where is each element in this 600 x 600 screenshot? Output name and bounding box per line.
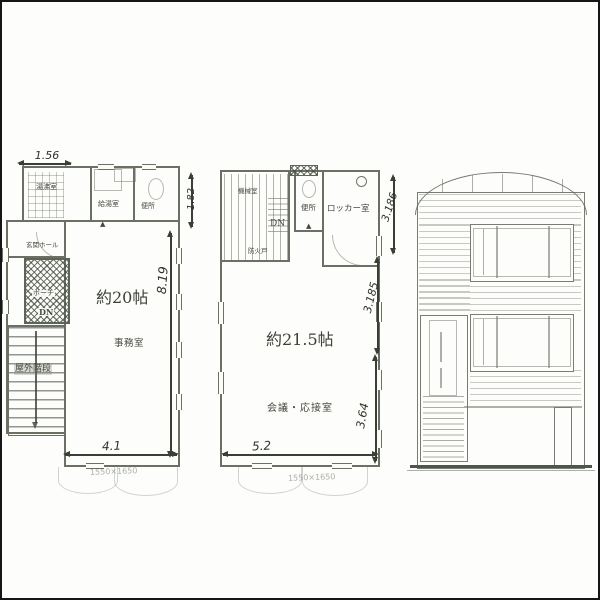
door-slit xyxy=(440,332,442,362)
stairs-direction-line xyxy=(35,331,37,423)
window-symbol xyxy=(176,342,182,358)
down-label: DN xyxy=(270,220,285,229)
fire-door-marker: ▲ xyxy=(306,223,311,230)
room-label-locker: ロッカー室 xyxy=(327,205,370,214)
dim-arrowhead xyxy=(172,451,179,457)
vent-hatch xyxy=(290,165,318,176)
wall xyxy=(288,170,290,262)
room-label-machine: 機械室 xyxy=(238,188,258,195)
scanned-floor-plan-sheet: 湯沸室 給湯室 便所 玄関ホール ポーチ DN 約20帖 事務室 屋外階段 ▲ … xyxy=(0,0,600,600)
room-label-toilet: 便所 xyxy=(301,204,316,212)
utility-room-hatch xyxy=(28,172,64,218)
window-pane-line xyxy=(483,229,484,275)
ground-line xyxy=(410,465,592,468)
dim-right-height: 8.19 xyxy=(155,260,170,301)
dim-line xyxy=(65,454,177,456)
dim-arrowhead xyxy=(374,256,380,263)
entrance-door xyxy=(429,320,457,396)
wall xyxy=(294,170,296,232)
dim-arrowhead xyxy=(65,160,72,166)
window-symbol xyxy=(98,164,114,170)
window-symbol xyxy=(2,248,9,262)
area-label-2f: 約21.5帖 xyxy=(266,332,334,348)
dim-upper-right: 1.82 xyxy=(187,183,197,215)
wall xyxy=(220,260,290,262)
window-symbol xyxy=(376,236,382,256)
dim-arrowhead xyxy=(372,354,378,361)
entrance-stairs-hatch xyxy=(423,396,464,458)
dim-line xyxy=(223,454,377,456)
window-symbol xyxy=(376,370,382,390)
room-label-porch: ポーチ xyxy=(32,290,55,297)
dim-arrowhead xyxy=(17,160,24,166)
dim-bottom-width: 5.2 xyxy=(252,440,272,453)
arch-tick xyxy=(502,174,503,192)
room-label-utility: 湯沸室 xyxy=(36,184,57,191)
stairs-down-arrowhead xyxy=(32,422,38,429)
fixture-circle xyxy=(356,176,367,187)
arch-tick xyxy=(532,175,533,192)
dim-top-width: 1.56 xyxy=(24,150,70,161)
dim-line xyxy=(19,163,71,165)
dim-arrowhead xyxy=(390,174,396,181)
wall xyxy=(294,230,324,232)
dim-arrowhead xyxy=(63,451,70,457)
room-label-kitchenette: 給湯室 xyxy=(98,201,119,208)
ghost-arc xyxy=(58,467,118,494)
toilet-fixture xyxy=(148,178,164,200)
fire-door-marker: ▲ xyxy=(100,221,105,228)
wall xyxy=(90,166,92,222)
room-label-meeting: 会議・応接室 xyxy=(267,404,333,414)
wall xyxy=(178,166,180,467)
window-symbol xyxy=(142,164,156,170)
dim-arrowhead xyxy=(188,172,194,179)
wall xyxy=(22,166,24,222)
window-symbol xyxy=(176,294,182,310)
window-symbol xyxy=(2,300,9,314)
window-inner-frame xyxy=(473,318,571,367)
room-label-outdoor-stairs: 屋外階段 xyxy=(14,364,52,375)
ghost-arc xyxy=(114,467,178,496)
window-symbol xyxy=(218,372,224,394)
dim-bottom-width: 4.1 xyxy=(102,440,122,453)
sink-fixture xyxy=(114,168,136,182)
dim-arrowhead xyxy=(372,457,378,464)
arch-tick xyxy=(562,179,563,192)
down-label: DN xyxy=(38,308,54,316)
dim-right-lower: 3.64 xyxy=(354,398,371,433)
wall xyxy=(322,170,324,267)
wall xyxy=(322,265,380,267)
room-label-entrance-hall: 玄関ホール xyxy=(26,242,59,249)
dim-line xyxy=(375,357,377,461)
room-label-toilet: 便所 xyxy=(141,203,155,210)
arch-tick xyxy=(472,175,473,192)
dim-arrowhead xyxy=(372,451,379,457)
window-symbol xyxy=(218,302,224,324)
wall xyxy=(6,220,66,222)
door-swing-arc xyxy=(332,235,363,266)
window-symbol xyxy=(376,430,382,448)
siding-band xyxy=(419,280,581,314)
room-label-office: 事務室 xyxy=(114,339,144,349)
toilet-fixture xyxy=(302,180,316,198)
dim-arrowhead xyxy=(188,222,194,229)
dim-arrowhead xyxy=(167,230,173,237)
window-inner-frame xyxy=(473,228,571,277)
area-label-1f: 約20帖 xyxy=(96,290,148,306)
siding-band xyxy=(419,194,581,225)
ghost-arc xyxy=(302,467,368,496)
dim-right-upper: 3.186 xyxy=(379,188,401,227)
ground-shadow-line xyxy=(407,470,595,471)
ghost-arc xyxy=(238,467,302,494)
door-slit xyxy=(440,368,442,388)
window-pane-line xyxy=(483,319,484,365)
outdoor-stairs-treads xyxy=(8,326,66,436)
window-symbol xyxy=(176,248,182,264)
dim-line xyxy=(377,259,379,353)
column xyxy=(554,407,572,467)
dim-arrowhead xyxy=(221,451,228,457)
dim-arrowhead xyxy=(390,248,396,255)
fire-door-label: 防火戸 xyxy=(248,248,268,255)
arch-tick xyxy=(442,179,443,192)
siding-band xyxy=(470,370,581,406)
window-symbol xyxy=(176,394,182,410)
